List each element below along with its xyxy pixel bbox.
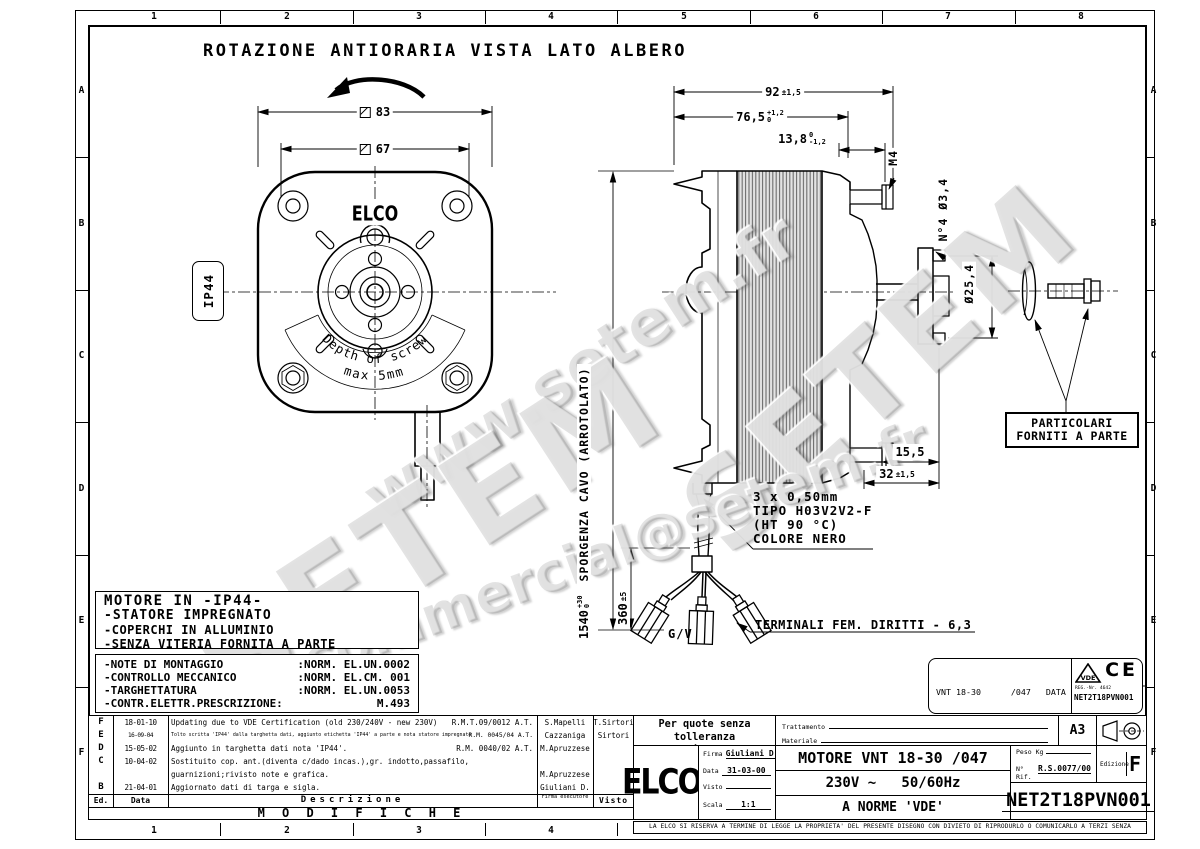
square-dim-icon (360, 144, 371, 155)
peso-row: Peso Kg (1016, 748, 1091, 764)
rev-desc: Aggiornato dati di targa e sigla. (171, 781, 320, 794)
border-row-label: E (75, 615, 88, 626)
cable-spec-line: (HT 90 °C) (753, 518, 872, 532)
border-tick (1015, 11, 1016, 24)
border-tick (485, 823, 486, 836)
norm-value: M.493 (377, 697, 410, 710)
treatment-label: Trattamento (782, 723, 825, 731)
sheet-format: A3 (1058, 715, 1097, 746)
rev-firma: S.Mapelli (537, 716, 593, 729)
dim-flange: 15,5 (893, 444, 928, 460)
drawing-code: NET2T18PVN001 (1002, 790, 1155, 812)
cable-length-label: 1540 +30 0 SPORGENZA CAVO (ARROTOLATO) (577, 365, 591, 643)
rev-desc: Sostituito cop. ant.(diventa c/dado inca… (171, 755, 469, 768)
border-tick (353, 11, 354, 24)
data-plate-marks: VDE CE REG.-Nr. 4642 NET2T18PVN001 (1071, 659, 1142, 713)
border-tick (1147, 422, 1155, 423)
dim-body-value: 76,5 (736, 110, 765, 124)
norm-value: :NORM. EL.UN.0002 (297, 658, 410, 671)
data-plate-code: NET2T18PVN001 (1074, 693, 1133, 702)
border-col-label: 1 (134, 825, 174, 836)
vde-text: VDE (1081, 674, 1096, 682)
dim-shaft-value: 32 (879, 467, 893, 481)
dim-width-tol: ±1,5 (782, 88, 801, 97)
cable-spec-line: COLORE NERO (753, 532, 872, 546)
cable-free-length-tol: ±5 (619, 592, 628, 602)
border-col-label: 6 (796, 11, 836, 22)
data-plate-specs: VNT 18-30 /047 DATA 230V ~50/60Hz 18/73W… (929, 659, 1071, 713)
norm-note-row: -CONTR.ELETTR.PRESCRIZIONE: M.493 (104, 697, 410, 710)
border-row-label: A (1147, 85, 1160, 96)
rev-ed: C (89, 755, 113, 768)
vde-icon: VDE (1075, 663, 1102, 685)
drawing-code-cell: NET2T18PVN001 (1010, 782, 1147, 820)
norm-label: -TARGHETTATURA (104, 684, 197, 697)
scala-label: Scala (703, 801, 723, 809)
revision-table: F 18-01-10 Updating due to VDE Certifica… (88, 715, 634, 820)
rev-firma: Giuliani D. (537, 781, 593, 794)
dim-flange-value: 15,5 (896, 445, 925, 459)
border-col-label: 2 (267, 825, 307, 836)
treatment-underline (829, 720, 1048, 729)
revision-row: C 10-04-02 Sostituito cop. ant.(diventa … (89, 755, 634, 768)
dim-width: 92 ±1,5 (762, 84, 804, 100)
data-row: Data 31-03-00 (703, 766, 771, 783)
vde-reg-number: REG.-Nr. 4642 (1075, 686, 1111, 691)
motor-notes-line: -SENZA VITERIA FORNITA A PARTE (104, 637, 418, 651)
cable-free-length-label: 360 ±5 (616, 589, 630, 628)
border-tick (750, 11, 751, 24)
norm-note-row: -TARGHETTATURA :NORM. EL.UN.0053 (104, 684, 410, 697)
border-tick (1147, 290, 1155, 291)
product-title-cell: MOTORE VNT 18-30 /047 230V ~ 50/60Hz A N… (775, 745, 1011, 820)
scala-value: 1:1 (726, 800, 771, 810)
norm-label: -CONTR.ELETTR.PRESCRIZIONE: (104, 697, 283, 710)
rev-firma: M.Apruzzese (537, 742, 593, 755)
border-col-label: 4 (531, 825, 571, 836)
data-value: 31-03-00 (722, 766, 771, 776)
border-tick (220, 823, 221, 836)
weight-ref-cell: Peso Kg N° Rif. R.S.0077/00 (1010, 745, 1097, 783)
legal-disclaimer: LA ELCO SI RISERVA A TERMINE DI LEGGE LA… (633, 821, 1147, 834)
dim-width-value: 92 (765, 85, 779, 99)
ground-wire-label: G/V (668, 627, 693, 641)
edition-cell: Edizione F (1096, 745, 1147, 783)
cable-spec-note: 3 x 0,50mm TIPO H03V2V2-F (HT 90 °C) COL… (753, 490, 872, 546)
border-row-label: F (75, 747, 88, 758)
terminal-note: TERMINALI FEM. DIRITTI - 6,3 (755, 618, 971, 632)
treatment-material-cell: Trattamento Materiale (775, 715, 1059, 746)
dim-body: 76,5 +1,2 0 (733, 109, 787, 125)
border-tick (617, 823, 618, 836)
border-tick (617, 11, 618, 24)
product-norm: A NORME 'VDE' (776, 796, 1010, 820)
rev-header-date: Data (113, 794, 168, 807)
rev-firma: Cazzaniga (537, 729, 593, 742)
border-row-label: B (75, 218, 88, 229)
dim-hub: 13,8 0 -1,2 (775, 131, 829, 147)
border-row-label: E (1147, 615, 1160, 626)
dim-shaft: 32 ±1,5 (876, 466, 918, 482)
border-col-label: 3 (399, 825, 439, 836)
edition-value: F (1126, 752, 1143, 776)
thread-label: M4 (886, 148, 900, 168)
cable-free-length-value: 360 (616, 603, 630, 625)
square-dim-icon (360, 107, 371, 118)
dim-outer-value: 83 (376, 105, 390, 119)
spare-parts-detail (1008, 262, 1118, 320)
rif-label: N° Rif. (1016, 765, 1035, 781)
first-angle-projection-icon (1099, 719, 1145, 743)
dim-shaft-tol: ±1,5 (896, 470, 915, 479)
border-row-label: D (1147, 483, 1160, 494)
rev-date: 21-04-01 (113, 781, 168, 794)
rif-value: R.S.0077/00 (1038, 764, 1091, 774)
data-plate-line: VNT 18-30 /047 DATA (936, 687, 1071, 698)
norm-note-row: -CONTROLLO MECCANICO :NORM. EL.CM. 001 (104, 671, 410, 684)
border-row-label: F (1147, 747, 1160, 758)
norm-label: -NOTE DI MONTAGGIO (104, 658, 223, 671)
norm-note-row: -NOTE DI MONTAGGIO :NORM. EL.UN.0002 (104, 658, 410, 671)
page-title: ROTAZIONE ANTIORARIA VISTA LATO ALBERO (203, 41, 687, 61)
cable-length-tol: +30 0 (577, 595, 591, 608)
motor-notes-line: -COPERCHI IN ALLUMINIO (104, 623, 418, 637)
rev-header-ed: Ed. (89, 794, 113, 807)
dim-body-tol: +1,2 0 (767, 110, 784, 124)
border-col-label: 1 (134, 11, 174, 22)
tol-dn: 0 (584, 595, 591, 608)
rev-date: 16-09-04 (113, 729, 168, 742)
rev-desc: guarnizioni;rivisto note e grafica. (171, 768, 329, 781)
material-label: Materiale (782, 737, 817, 745)
tol-dn: 0 (767, 117, 784, 124)
material-row: Materiale (782, 731, 1052, 745)
peso-label: Peso Kg (1016, 748, 1043, 756)
motor-logo: ELCO (351, 202, 399, 226)
motor-data-plate: VNT 18-30 /047 DATA 230V ~50/60Hz 18/73W… (928, 658, 1143, 714)
revision-row: D 15-05-02 Aggiunto in targhetta dati no… (89, 742, 634, 755)
firma-value: Giuliani D. (726, 749, 779, 759)
rev-ed: D (89, 742, 113, 755)
norm-value: :NORM. EL.UN.0053 (297, 684, 410, 697)
peso-value (1046, 753, 1091, 754)
cable-spec-line: TIPO H03V2V2-F (753, 504, 872, 518)
border-col-label: 8 (1061, 11, 1101, 22)
tolerance-note-line1: Per quote senza tolleranza (634, 718, 775, 744)
border-tick (485, 11, 486, 24)
flange-dia-label: Ø25,4 (962, 262, 976, 306)
border-tick (1147, 555, 1155, 556)
border-tick (882, 11, 883, 24)
dim-inner-square: 67 (357, 141, 393, 157)
motor-notes-title: MOTORE IN -IP44- (104, 594, 418, 609)
drawing-sheet: 1 2 3 4 5 6 7 8 1 2 3 4 A B C D E F A B … (0, 0, 1200, 849)
rev-ref: R.M. 0040/02 A.T. (388, 742, 533, 755)
product-name: MOTORE VNT 18-30 /047 (776, 746, 1010, 771)
border-tick (353, 823, 354, 836)
rev-desc: Aggiunto in targhetta dati nota 'IP44'. (171, 742, 347, 755)
border-tick (75, 687, 88, 688)
signature-fields: Firma Giuliani D. Data 31-03-00 Visto Sc… (698, 745, 776, 820)
rev-date: 15-05-02 (113, 742, 168, 755)
border-tick (220, 11, 221, 24)
rev-ref: R.M.T.09/0012 A.T. (388, 716, 533, 729)
rev-header-firma: Firma esecutore (537, 794, 593, 807)
visto-value (726, 788, 771, 789)
projection-symbol-cell (1096, 715, 1147, 746)
rev-ed: B (89, 781, 113, 794)
border-row-label: C (1147, 350, 1160, 361)
border-col-label: 4 (531, 11, 571, 22)
company-logo: ELCO® (622, 762, 710, 802)
cable-length-value: 1540 (577, 610, 591, 639)
dim-hub-value: 13,8 (778, 132, 807, 146)
ip-rating-text: IP44 (201, 274, 216, 308)
border-col-label: 5 (664, 11, 704, 22)
rif-row: N° Rif. R.S.0077/00 (1016, 764, 1091, 780)
through-bolts (850, 185, 893, 467)
border-tick (75, 555, 88, 556)
spare-parts-note: PARTICOLARI FORNITI A PARTE (1005, 412, 1139, 448)
firma-label: Firma (703, 750, 723, 758)
border-tick (1147, 157, 1155, 158)
border-tick (1147, 687, 1155, 688)
rev-date: 18-01-10 (113, 716, 168, 729)
ce-mark-icon: CE (1105, 659, 1138, 681)
border-tick (75, 422, 88, 423)
ip-rating-label: IP44 (192, 261, 224, 321)
dim-outer-square: 83 (357, 104, 393, 120)
scala-row: Scala 1:1 (703, 800, 771, 817)
border-row-label: B (1147, 218, 1160, 229)
revision-row: B 21-04-01 Aggiornato dati di targa e si… (89, 781, 634, 794)
rev-ed: F (89, 716, 113, 729)
norm-notes-box: -NOTE DI MONTAGGIO :NORM. EL.UN.0002 -CO… (95, 654, 419, 713)
firma-row: Firma Giuliani D. (703, 749, 771, 766)
rotation-arrow-icon (327, 77, 424, 98)
data-label: Data (703, 767, 719, 775)
side-view-dimensions (598, 86, 1147, 686)
spare-parts-line2: FORNITI A PARTE (1007, 430, 1137, 443)
cable-terminals (631, 591, 771, 645)
cable-spec-line: 3 x 0,50mm (753, 490, 872, 504)
revision-row: E 16-09-04 Tolto scritta 'IP44' dalla ta… (89, 729, 634, 742)
rev-visto: Sirtori (593, 729, 634, 742)
product-voltage: 230V ~ 50/60Hz (776, 771, 1010, 796)
border-tick (75, 157, 88, 158)
border-col-label: 3 (399, 11, 439, 22)
visto-label: Visto (703, 783, 723, 791)
dim-inner-value: 67 (376, 142, 390, 156)
company-logo-cell: ELCO® (633, 745, 699, 820)
tolerance-note: Per quote senza tolleranza normativa UNI… (633, 715, 776, 746)
revision-row: F 18-01-10 Updating due to VDE Certifica… (89, 716, 634, 729)
holes-label: N°4 Ø3,4 (936, 176, 950, 243)
company-logo-text: ELCO (622, 762, 701, 802)
rev-ed: E (89, 729, 113, 742)
border-tick (75, 290, 88, 291)
material-underline (821, 734, 1048, 743)
border-row-label: A (75, 85, 88, 96)
norm-label: -CONTROLLO MECCANICO (104, 671, 236, 684)
cable-length-note: SPORGENZA CAVO (ARROTOLATO) (577, 368, 591, 582)
dim-hub-tol: 0 -1,2 (809, 132, 826, 146)
rev-footer: M O D I F I C H E (89, 807, 634, 820)
visto-row: Visto (703, 783, 771, 800)
rev-visto: T.Sirtori (593, 716, 634, 729)
title-block: F 18-01-10 Updating due to VDE Certifica… (88, 715, 1147, 820)
rev-firma: M.Apruzzese (537, 768, 593, 781)
tol-dn: -1,2 (809, 139, 826, 146)
border-col-label: 7 (928, 11, 968, 22)
border-col-label: 2 (267, 11, 307, 22)
motor-notes-line: -STATORE IMPREGNATO (104, 609, 418, 623)
rev-ref: R.M. 0045/04 A.T. (388, 729, 533, 742)
treatment-row: Trattamento (782, 717, 1052, 731)
norm-value: :NORM. EL.CM. 001 (297, 671, 410, 684)
edition-label: Edizione (1100, 761, 1126, 768)
motor-notes-box: MOTORE IN -IP44- -STATORE IMPREGNATO -CO… (95, 591, 419, 649)
rev-date: 10-04-02 (113, 755, 168, 768)
revision-row: guarnizioni;rivisto note e grafica. M.Ap… (89, 768, 634, 781)
border-row-label: D (75, 483, 88, 494)
border-row-label: C (75, 350, 88, 361)
